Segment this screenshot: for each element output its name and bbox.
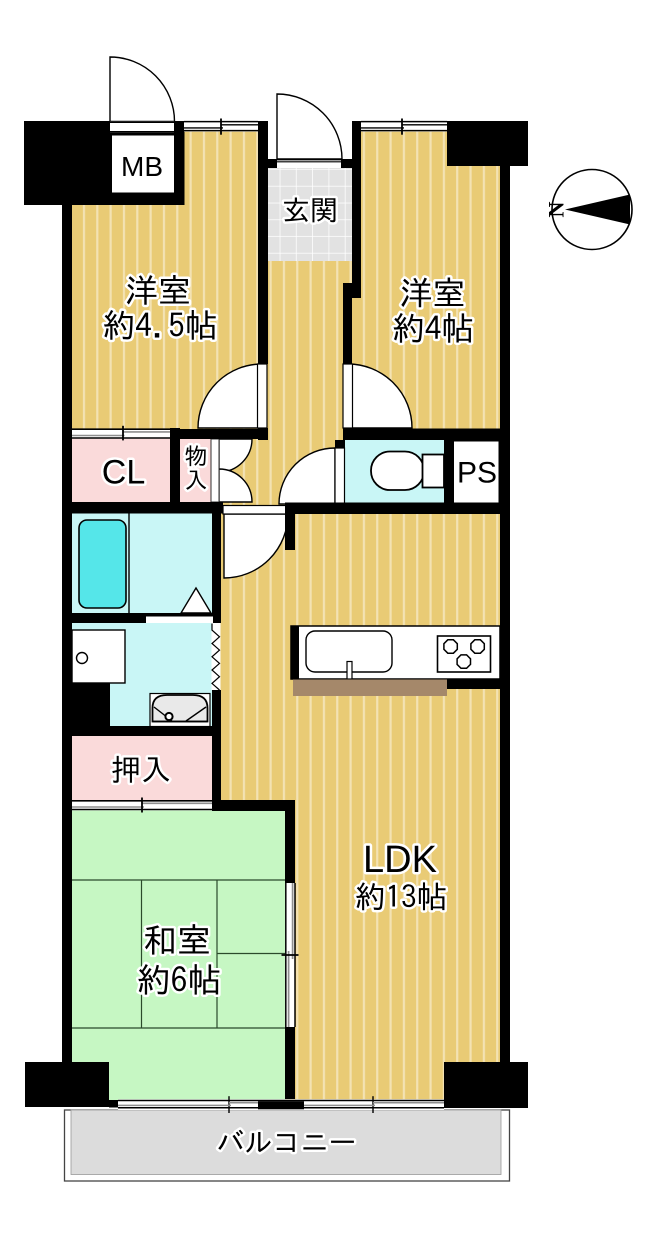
svg-text:LDK: LDK bbox=[363, 839, 437, 881]
svg-text:MB: MB bbox=[121, 151, 163, 182]
svg-text:PS: PS bbox=[457, 456, 497, 489]
svg-text:N: N bbox=[544, 201, 569, 217]
svg-text:CL: CL bbox=[102, 453, 145, 491]
